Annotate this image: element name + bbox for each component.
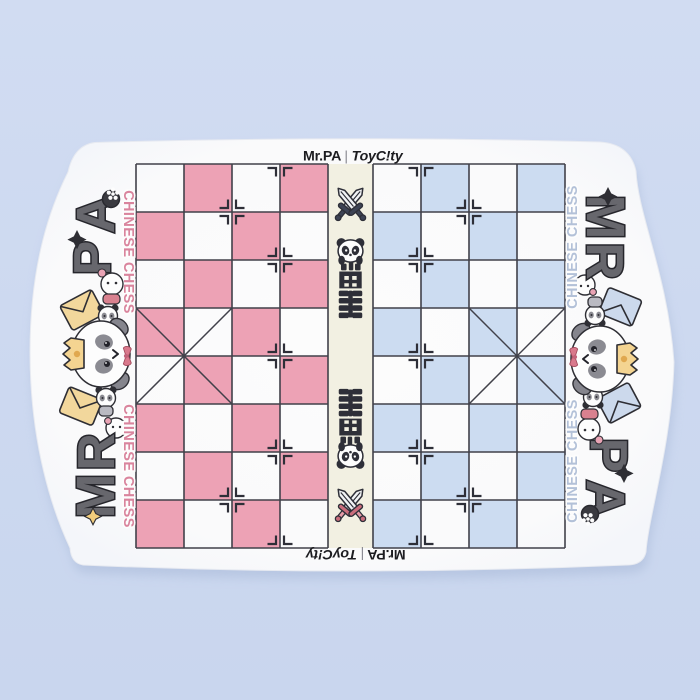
svg-text:M: M (575, 195, 635, 240)
svg-text:R: R (575, 242, 633, 280)
svg-text:M: M (66, 474, 126, 519)
svg-text:CHINESE CHESS: CHINESE CHESS (565, 399, 581, 523)
svg-text:Mr.PA | ToyC!ty: Mr.PA | ToyC!ty (305, 546, 406, 562)
svg-text:CHINESE CHESS: CHINESE CHESS (120, 404, 136, 528)
svg-text:P: P (579, 438, 637, 473)
svg-text:R: R (68, 433, 126, 471)
svg-text:CHINESE CHESS: CHINESE CHESS (565, 185, 581, 309)
svg-text:P: P (64, 241, 122, 276)
svg-text:CHINESE CHESS: CHINESE CHESS (120, 190, 136, 314)
svg-text:Mr.PA | ToyC!ty: Mr.PA | ToyC!ty (303, 149, 404, 165)
